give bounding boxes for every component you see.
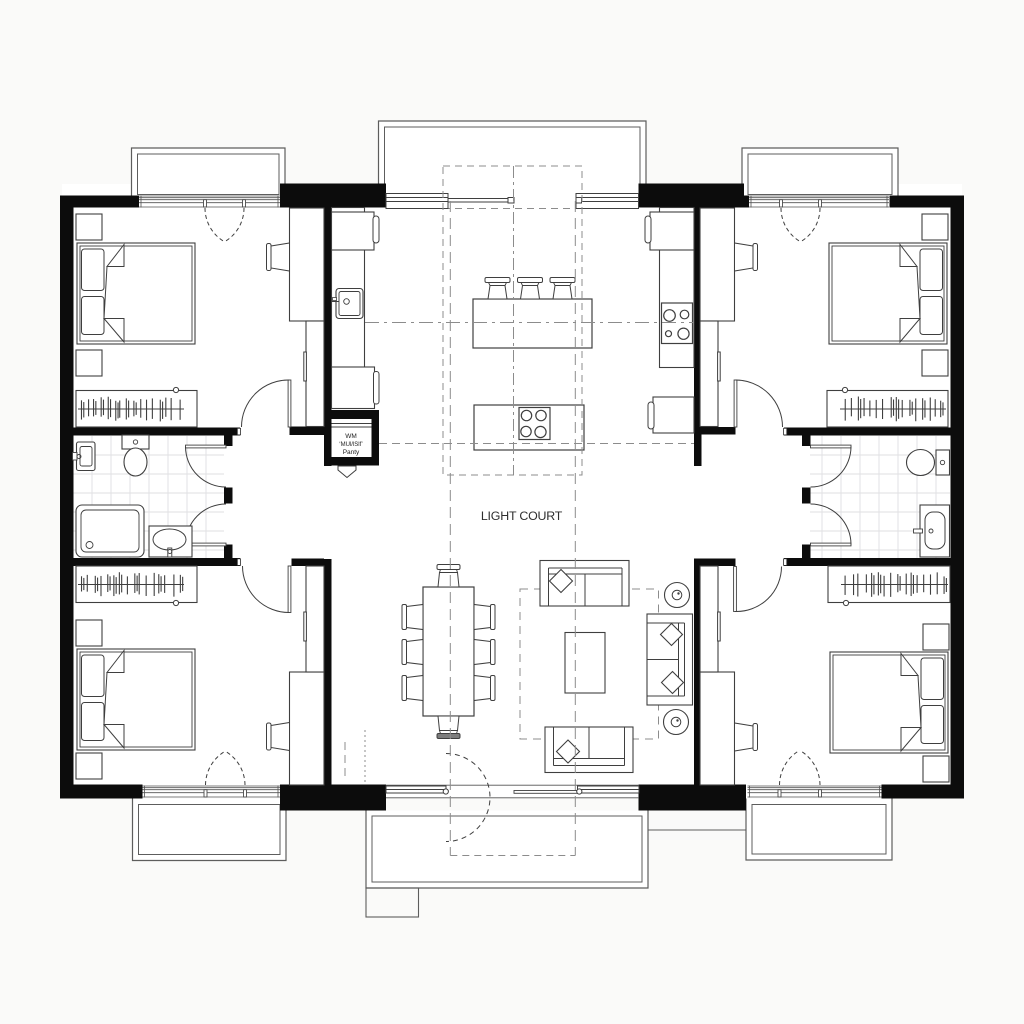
svg-text:LIGHT COURT: LIGHT COURT	[481, 509, 563, 523]
svg-text:‘MUl/lSlf’: ‘MUl/lSlf’	[339, 442, 362, 448]
svg-text:Panty: Panty	[343, 449, 360, 456]
svg-text:WM: WM	[345, 433, 357, 440]
